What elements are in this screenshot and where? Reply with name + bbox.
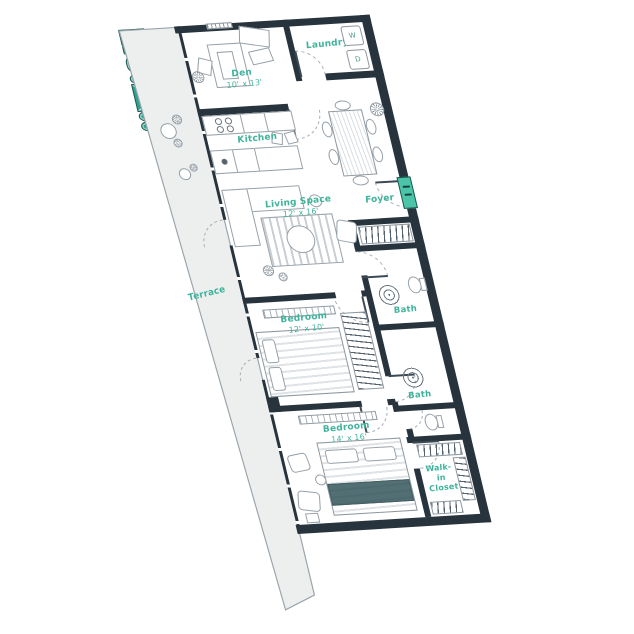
bedroom1-label: Bedroom 12' x 10' <box>279 311 331 336</box>
den-label: Den 10' x 13' <box>223 67 265 91</box>
bath1-door-leaf <box>362 276 388 278</box>
washer-letter: W <box>348 32 357 40</box>
bedroom2-pillow-icon <box>324 448 359 464</box>
den-label-text: Den <box>230 68 253 80</box>
wc-door-arc <box>404 410 426 429</box>
terrace-door1-arc <box>198 220 230 247</box>
walkin-hatch-bottom <box>430 500 464 515</box>
bath2-label: Bath <box>407 389 433 402</box>
laundry-door-leaf <box>295 51 301 77</box>
bath1-label: Bath <box>393 304 419 317</box>
floorplan-page: { "rooms": { "terrace": { "label": "Terr… <box>0 0 634 634</box>
bedroom2-chair-icon <box>297 490 321 512</box>
island-sink-icon <box>221 159 228 165</box>
bedroom2-pillow-icon <box>362 446 397 462</box>
hall-closet-hatch <box>358 224 414 245</box>
walkin-hatch-top <box>416 442 463 458</box>
bedroom2-nightstand-icon <box>305 513 320 524</box>
bath1-door-arc <box>356 250 388 277</box>
dryer-letter: D <box>354 55 361 63</box>
bedroom2-label: Bedroom 14' x 16' <box>322 421 374 446</box>
armchair-icon <box>336 219 357 244</box>
floorplan: Terrace <box>118 14 519 617</box>
terrace-door2-arc <box>236 358 263 381</box>
